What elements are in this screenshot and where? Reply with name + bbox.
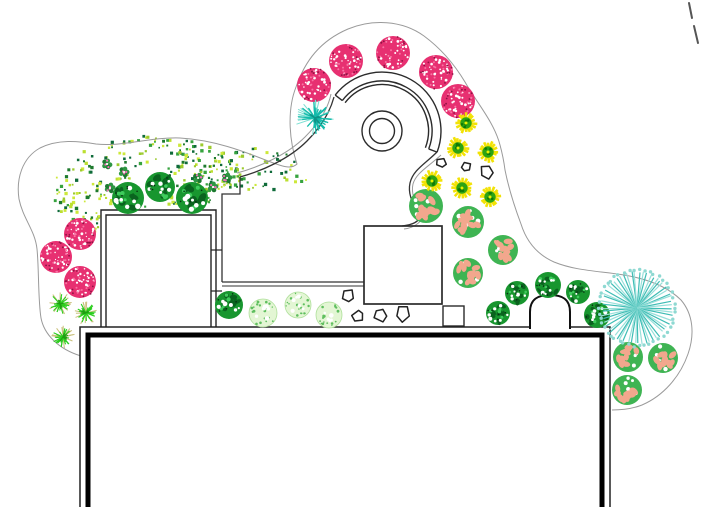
clover-plant-symbol[interactable]	[208, 182, 219, 193]
corner-mark-1	[689, 3, 692, 18]
stepping-stone[interactable]	[343, 290, 354, 302]
band-inner-edge	[342, 81, 432, 149]
yellow-star-plant-symbol[interactable]	[455, 112, 477, 133]
pale-shrub-symbol[interactable]	[316, 302, 342, 328]
pink-tree-symbol[interactable]	[376, 36, 410, 70]
salmon-shrub-symbol[interactable]	[612, 375, 642, 405]
corner-mark-2	[694, 26, 698, 43]
patio-arc-outer	[237, 94, 331, 173]
pink-tree-symbol[interactable]	[64, 266, 96, 298]
grass-tuft-symbol[interactable]	[75, 302, 97, 324]
pink-tree-symbol[interactable]	[419, 55, 454, 90]
landscape-plan	[0, 0, 705, 507]
salmon-shrub-symbol[interactable]	[452, 206, 484, 238]
shed-inner-wall	[106, 215, 211, 328]
yellow-star-plant-symbol[interactable]	[451, 178, 472, 199]
yellow-star-plant-symbol[interactable]	[478, 141, 499, 163]
pink-tree-symbol[interactable]	[297, 68, 331, 102]
patio-arc-inner	[240, 97, 334, 177]
band-cap-1	[335, 95, 342, 100]
landscape-plan-canvas[interactable]	[0, 0, 705, 507]
grass-tuft-symbol[interactable]	[51, 326, 74, 348]
clover-plant-symbol[interactable]	[222, 173, 233, 184]
stepping-stone[interactable]	[462, 163, 471, 171]
pale-shrub-symbol[interactable]	[285, 292, 311, 318]
yellow-star-plant-symbol[interactable]	[422, 170, 443, 191]
salmon-shrub-symbol[interactable]	[613, 342, 643, 372]
green-shrub-symbol[interactable]	[566, 280, 590, 304]
green-shrub-symbol[interactable]	[112, 182, 144, 214]
small-square-bed[interactable]	[443, 306, 464, 326]
stepping-stone[interactable]	[437, 159, 447, 168]
house-outer-wall	[80, 327, 610, 507]
yellow-star-plant-symbol[interactable]	[480, 187, 501, 207]
pink-tree-symbol[interactable]	[329, 44, 363, 78]
groundcover-mass[interactable]	[54, 135, 307, 233]
green-shrub-symbol[interactable]	[215, 291, 243, 319]
feature-circle-1	[362, 111, 402, 151]
yellow-star-plant-symbol[interactable]	[447, 137, 469, 158]
salmon-shrub-symbol[interactable]	[409, 189, 443, 223]
arch-alcove[interactable]	[530, 295, 570, 329]
salmon-shrub-symbol[interactable]	[453, 258, 483, 288]
pink-tree-symbol[interactable]	[40, 241, 72, 273]
green-shrub-symbol[interactable]	[486, 301, 510, 326]
grass-tuft-symbol[interactable]	[50, 293, 72, 315]
green-shrub-symbol[interactable]	[535, 272, 561, 298]
corner-marks	[689, 3, 698, 43]
stepping-stone[interactable]	[397, 307, 409, 322]
salmon-shrub-symbol[interactable]	[648, 343, 678, 373]
stepping-stone[interactable]	[481, 166, 493, 179]
circular-feature[interactable]	[362, 111, 402, 151]
salmon-shrub-symbol[interactable]	[488, 235, 518, 265]
clover-plant-symbol[interactable]	[102, 159, 112, 170]
pale-shrub-symbol[interactable]	[249, 299, 277, 327]
square-bed[interactable]	[364, 226, 442, 304]
shed-outer-wall	[101, 210, 216, 328]
green-shrub-symbol[interactable]	[145, 172, 175, 202]
pink-tree-symbol[interactable]	[64, 218, 96, 250]
green-shrub-symbol[interactable]	[505, 281, 529, 306]
stepping-stone[interactable]	[352, 310, 363, 321]
clover-plant-symbol[interactable]	[193, 173, 203, 183]
stepping-stone[interactable]	[374, 309, 387, 322]
green-shrub-symbol[interactable]	[176, 182, 208, 214]
feature-circle-2	[370, 119, 395, 144]
patio-left-outline	[222, 177, 240, 282]
band-cap-2	[429, 149, 437, 152]
house-building[interactable]	[80, 295, 610, 507]
